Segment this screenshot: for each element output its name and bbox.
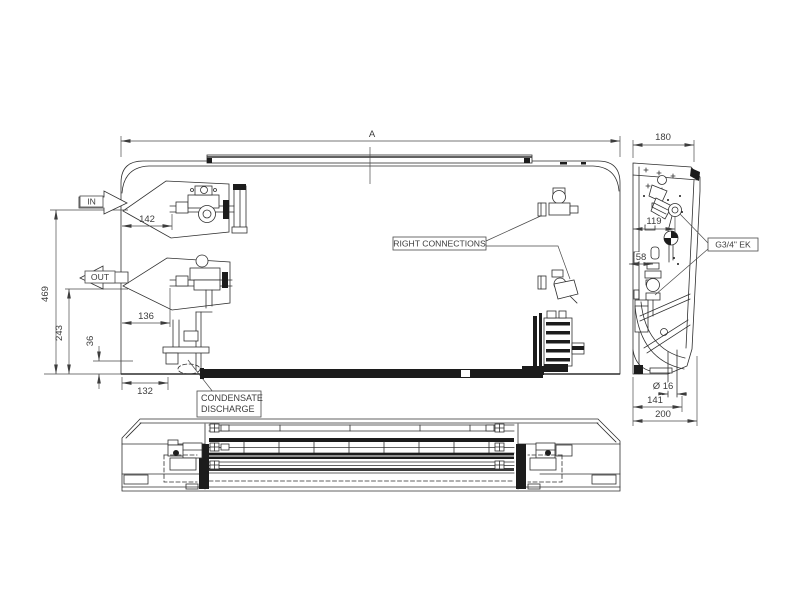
dim-text-243: 243 (54, 325, 65, 341)
front-bottom-band (200, 368, 543, 379)
technical-drawing-page: A 142 (0, 0, 800, 600)
side-view: 180 119 58 Ø 16 141 200 (629, 132, 758, 426)
side-body-outline (633, 163, 700, 374)
dim-text-A: A (369, 129, 376, 140)
in-label: IN (87, 197, 96, 207)
front-view: A 142 (40, 129, 620, 417)
dim-depth-top: 180 (633, 132, 694, 162)
dim-drain-diameter: Ø 16 (653, 381, 687, 394)
dim-text-200: 200 (655, 409, 671, 420)
fan-coil-technical-drawing: A 142 (0, 0, 800, 600)
dim-text-141: 141 (647, 395, 663, 406)
right-connections-text: RIGHT CONNECTIONS (393, 239, 486, 249)
out-flow-symbol: OUT (65, 266, 128, 289)
dim-text-180: 180 (655, 132, 671, 143)
dim-text-132: 132 (137, 386, 153, 397)
dim-text-119: 119 (646, 216, 661, 227)
condensate-label-line2: DISCHARGE (201, 404, 255, 414)
out-label: OUT (91, 272, 110, 282)
dim-text-36: 36 (85, 336, 96, 347)
dim-text-136: 136 (138, 311, 154, 322)
dim-text-dia16: Ø 16 (653, 381, 674, 392)
dim-text-469: 469 (40, 286, 51, 302)
in-flow-symbol: IN (50, 191, 128, 214)
dim-front-width: A (121, 129, 620, 157)
dim-height-total: 469 (40, 210, 121, 374)
condensate-label-line1: CONDENSATE (201, 393, 263, 403)
bottom-view (122, 419, 620, 491)
dim-text-142: 142 (139, 214, 155, 225)
fitting-label-text: G3/4" EK (715, 240, 751, 250)
dim-drain-offset: 132 (122, 377, 168, 397)
dim-text-58: 58 (636, 252, 647, 263)
bottom-left-valve-cluster (164, 440, 209, 489)
